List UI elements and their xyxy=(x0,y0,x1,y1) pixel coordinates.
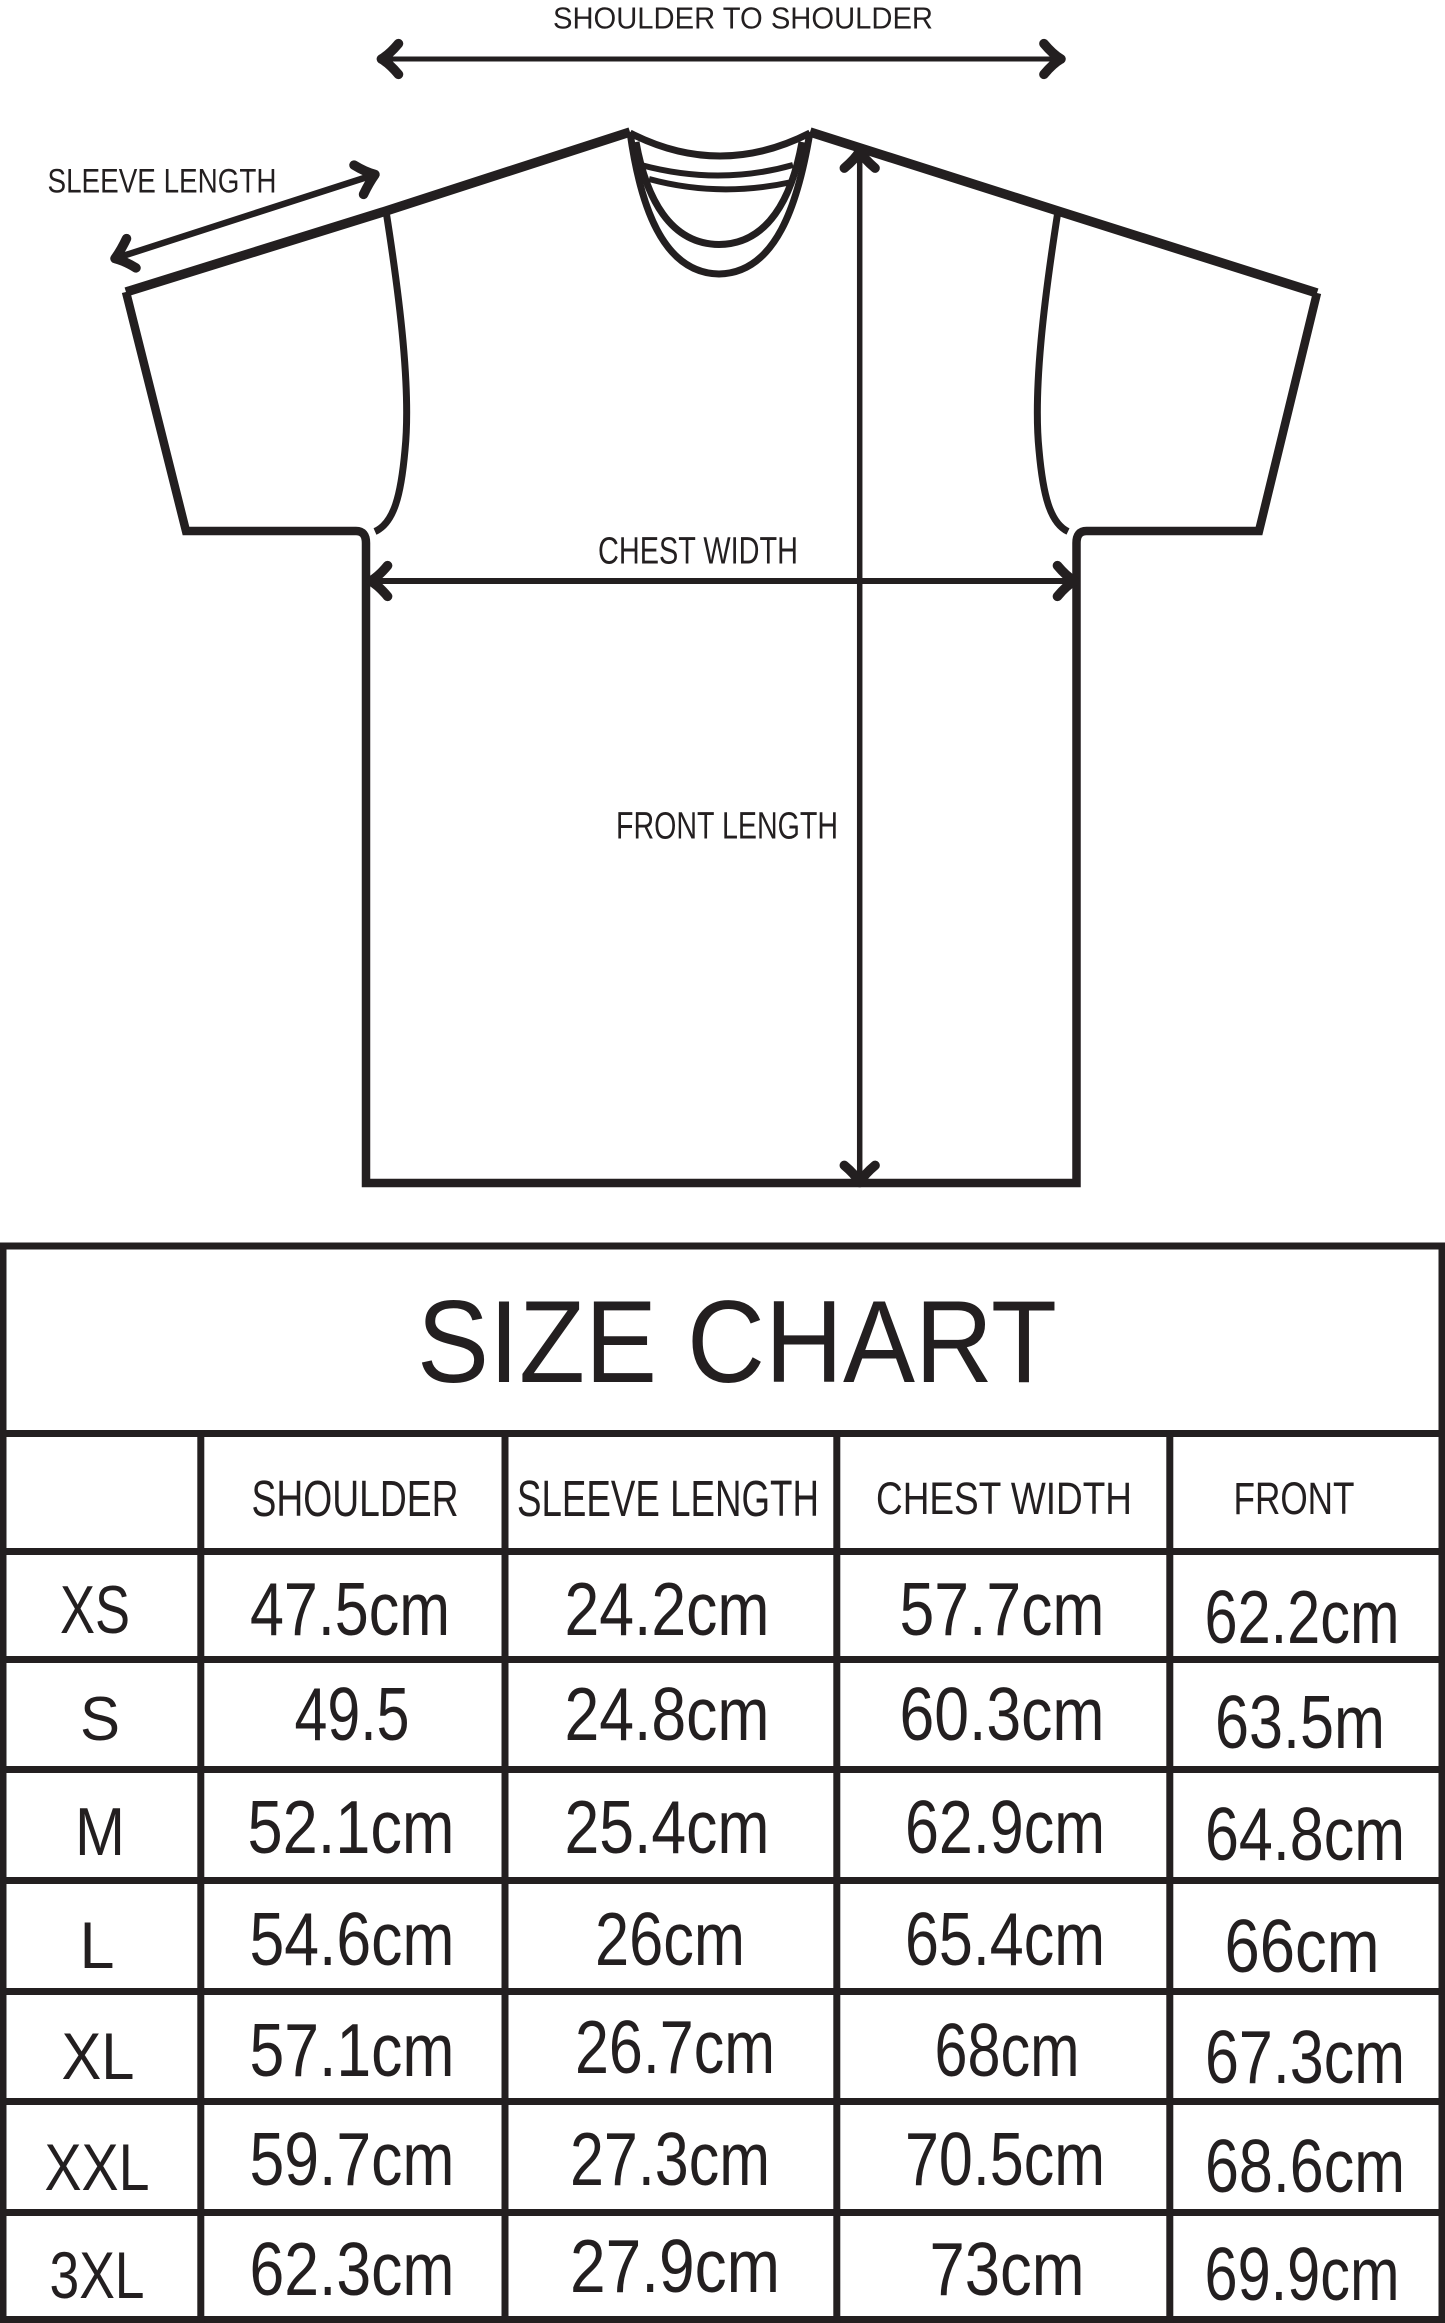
svg-text:68.6cm: 68.6cm xyxy=(1205,2124,1405,2208)
svg-text:66cm: 66cm xyxy=(1225,1904,1380,1988)
svg-text:27.9cm: 27.9cm xyxy=(570,2224,780,2308)
svg-text:XS: XS xyxy=(60,1572,130,1648)
svg-text:3XL: 3XL xyxy=(50,2238,145,2312)
svg-text:69.9cm: 69.9cm xyxy=(1205,2232,1400,2316)
svg-text:S: S xyxy=(80,1685,120,1754)
svg-text:SHOULDER TO SHOULDER: SHOULDER TO SHOULDER xyxy=(553,1,933,36)
svg-text:70.5cm: 70.5cm xyxy=(905,2117,1105,2201)
svg-text:SHOULDER: SHOULDER xyxy=(252,1470,459,1527)
svg-text:65.4cm: 65.4cm xyxy=(905,1897,1105,1981)
svg-text:L: L xyxy=(80,1908,115,1982)
svg-text:XXL: XXL xyxy=(45,2130,150,2204)
svg-text:62.3cm: 62.3cm xyxy=(250,2227,455,2311)
svg-text:CHEST WIDTH: CHEST WIDTH xyxy=(876,1473,1132,1524)
svg-text:68cm: 68cm xyxy=(935,2008,1080,2092)
svg-text:26cm: 26cm xyxy=(595,1897,745,1981)
svg-text:CHEST WIDTH: CHEST WIDTH xyxy=(598,531,798,573)
svg-text:FRONT LENGTH: FRONT LENGTH xyxy=(616,806,838,848)
svg-text:M: M xyxy=(75,1794,125,1870)
svg-text:73cm: 73cm xyxy=(930,2227,1085,2311)
svg-text:62.9cm: 62.9cm xyxy=(905,1785,1105,1869)
svg-text:26.7cm: 26.7cm xyxy=(575,2005,775,2089)
svg-text:60.3cm: 60.3cm xyxy=(900,1672,1105,1756)
svg-text:49.5: 49.5 xyxy=(295,1672,410,1756)
svg-text:FRONT: FRONT xyxy=(1234,1473,1355,1524)
svg-text:SIZE CHART: SIZE CHART xyxy=(417,1276,1057,1407)
svg-text:XL: XL xyxy=(62,2019,135,2093)
svg-text:62.2cm: 62.2cm xyxy=(1205,1575,1400,1659)
svg-text:25.4cm: 25.4cm xyxy=(565,1785,770,1869)
svg-text:57.1cm: 57.1cm xyxy=(250,2008,455,2092)
svg-text:67.3cm: 67.3cm xyxy=(1205,2015,1405,2099)
svg-text:47.5cm: 47.5cm xyxy=(250,1567,450,1651)
svg-text:27.3cm: 27.3cm xyxy=(570,2117,770,2201)
svg-text:59.7cm: 59.7cm xyxy=(250,2117,455,2201)
svg-text:54.6cm: 54.6cm xyxy=(250,1897,455,1981)
svg-text:63.5m: 63.5m xyxy=(1215,1680,1385,1764)
svg-text:SLEEVE LENGTH: SLEEVE LENGTH xyxy=(517,1470,819,1527)
svg-text:24.8cm: 24.8cm xyxy=(565,1672,770,1756)
svg-text:64.8cm: 64.8cm xyxy=(1205,1792,1405,1876)
svg-text:57.7cm: 57.7cm xyxy=(900,1567,1105,1651)
svg-text:24.2cm: 24.2cm xyxy=(565,1567,770,1651)
svg-text:SLEEVE LENGTH: SLEEVE LENGTH xyxy=(48,163,277,201)
svg-text:52.1cm: 52.1cm xyxy=(248,1785,455,1869)
